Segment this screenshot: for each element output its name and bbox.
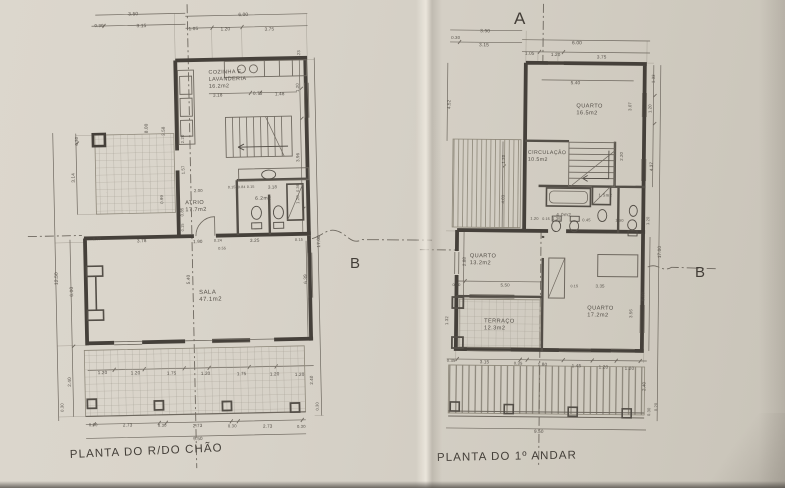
dimension-label: 1.45 xyxy=(572,363,582,368)
dimension-label: 0.35 xyxy=(447,358,456,363)
dimension-label: 4.52 xyxy=(446,99,451,109)
dimension-label: 0.15 xyxy=(570,284,578,288)
dimension-label: 9.50 xyxy=(534,429,544,434)
dimension-label: 0.30 xyxy=(314,402,319,411)
room-label: 1.5m2 xyxy=(598,193,612,198)
dimension-label: 1.20 xyxy=(530,216,539,221)
dimension-label: 1.20 xyxy=(295,372,305,377)
dimension-label: 1.20 xyxy=(625,366,635,371)
dimension-label: 5.50 xyxy=(501,282,511,287)
dimension-label: 1.20 xyxy=(98,370,108,375)
dimension-label: 3.78 xyxy=(137,238,147,243)
dimension-label: 1.20 xyxy=(551,52,561,57)
dimension-label: 1.20 xyxy=(221,26,231,31)
dimension-label: 1.20 xyxy=(295,195,300,204)
sink xyxy=(629,205,637,216)
dimension-label: 1.05 xyxy=(525,51,535,56)
dimension-label: 1.20 xyxy=(501,154,506,163)
dimension-label: 3.75 xyxy=(265,26,275,31)
dimension-label: 1.20 xyxy=(647,104,652,113)
dimension-label: 1.32 xyxy=(444,316,449,325)
dimension-label: 0.30 xyxy=(451,35,461,40)
ground-floor-plan: 3.500.303.156.001.051.203.7512.506.002.4… xyxy=(23,0,437,472)
dimension-label: 1.20 xyxy=(599,365,609,370)
dimension-label: 2.40 xyxy=(309,375,314,385)
section-marker-a: A xyxy=(514,9,526,28)
room-label: QUARTO17.2m2 xyxy=(587,305,614,318)
dimension-label: 6.00 xyxy=(640,291,645,301)
sink xyxy=(262,170,276,179)
dimension-label: 0.30 xyxy=(74,136,79,145)
dimension-label: 0.99 xyxy=(159,194,164,203)
dimension-label: 1.75 xyxy=(167,371,177,376)
roof-hatch-lower xyxy=(448,365,644,415)
dimension-label: 1.80 xyxy=(538,362,548,367)
dimension-label: 1.20 xyxy=(645,216,650,225)
dimension-label: 1.23 xyxy=(296,50,301,59)
dimension-label: 1.20 xyxy=(201,371,211,376)
dimension-label: 0.20 xyxy=(653,402,658,411)
dimension-label: 2.20 xyxy=(180,134,185,143)
dimension-label: 0.30 xyxy=(89,422,98,427)
dimension-label: 1.48 xyxy=(275,91,285,96)
dimension-label: 3.50 xyxy=(480,28,490,34)
room-label: SALA47.1m2 xyxy=(199,290,222,303)
dimension-label: 0.30 xyxy=(93,237,101,241)
dimension-label: 4.03 xyxy=(500,194,505,203)
dimension-label: 1.57 xyxy=(180,165,185,174)
toilet xyxy=(251,206,261,219)
dimension-label: 0.30 xyxy=(59,403,64,412)
bathroom-fixtures xyxy=(546,186,638,236)
dimension-label: 3.58 xyxy=(161,126,166,136)
dimension-label: 5.40 xyxy=(571,80,581,85)
dimension-label: 2.73 xyxy=(123,422,133,427)
dimension-label: 3.25 xyxy=(250,238,260,243)
toilet xyxy=(552,221,561,232)
dimension-label: 0.35 xyxy=(514,361,523,366)
dimension-label: 0.30 xyxy=(453,283,461,287)
room-label: QUARTO13.2m2 xyxy=(470,253,497,266)
dimension-label: 1.90 xyxy=(193,239,203,244)
dimension-label: 3.96 xyxy=(295,152,300,162)
dimension-label: 0.30 xyxy=(94,23,104,28)
wardrobes xyxy=(548,254,637,299)
dimension-label: 3.35 xyxy=(595,283,605,288)
dimension-label: 0.15 xyxy=(228,185,236,189)
dimension-label: 0.30 xyxy=(646,407,651,416)
dimension-label: 3.56 xyxy=(628,309,633,318)
dimension-label: 0.85 xyxy=(179,207,184,216)
dimension-label: 3.18 xyxy=(268,184,278,189)
section-marker-b-ground: B xyxy=(350,255,360,272)
dimension-label: 0.15 xyxy=(181,223,185,231)
dimension-label: 1.20 xyxy=(295,83,300,92)
dimension-label: 0.75 xyxy=(253,91,263,96)
section-marker-b-first: B xyxy=(695,264,705,281)
dimension-label: 17.00 xyxy=(657,246,662,259)
room-label: 4.0m2 xyxy=(556,212,571,217)
staircase xyxy=(569,142,615,186)
kitchen-counter xyxy=(177,60,308,145)
dimension-label: 0.55 xyxy=(218,246,226,250)
dimension-label: 0.24 xyxy=(214,239,222,243)
room-label: ATRIO17.7m2 xyxy=(185,200,207,213)
terrace-tiled-floor xyxy=(84,346,305,417)
dimension-label: 0.36 xyxy=(296,184,300,192)
room-label: CIRCULAÇÃO10.5m2 xyxy=(528,149,567,163)
room-label: 6.2m2 xyxy=(255,195,271,201)
dimension-label: 2.88 xyxy=(462,257,467,267)
dimension-label: 4.37 xyxy=(649,161,654,171)
dimension-label: 1.20 xyxy=(270,371,280,376)
fireplace xyxy=(87,266,104,320)
dimension-label: 0.15 xyxy=(295,238,303,242)
dimension-label: 1.33 xyxy=(651,74,656,83)
dimension-label: 12.50 xyxy=(54,272,60,285)
dimension-label: 0.15 xyxy=(542,217,550,221)
dimension-label: 1.20 xyxy=(131,370,141,375)
dimension-label: 2.73 xyxy=(193,423,203,428)
dimension-label: 0.45 xyxy=(582,217,591,222)
first-floor-plan: 3.500.303.156.001.051.203.755.401.331.20… xyxy=(418,3,719,470)
dimension-label: 3.15 xyxy=(479,42,489,48)
dimension-label: 2.40 xyxy=(67,377,72,387)
ground-floor-title: PLANTA DO R/DO CHÃO xyxy=(70,441,223,461)
dimension-label: 2.20 xyxy=(619,151,624,160)
dimension-label: 3.15 xyxy=(480,359,490,364)
first-floor-title: PLANTA DO 1º ANDAR xyxy=(437,450,577,464)
dimension-label: 0.15 xyxy=(247,185,255,189)
dimension-label: 2.00 xyxy=(194,188,203,193)
room-label: COZINHA ELAVANDERIA16.2m2 xyxy=(208,69,246,90)
roof-hatch-upper xyxy=(452,139,521,228)
dimension-label: 1.50 xyxy=(615,218,624,223)
dimension-label: 6.00 xyxy=(572,40,582,46)
toilet xyxy=(273,206,283,219)
dimension-label: 2.73 xyxy=(263,424,273,429)
dimension-label: 3.14 xyxy=(71,173,76,183)
toilet xyxy=(628,220,637,230)
dimension-label: 5.40 xyxy=(186,274,191,284)
dimension-label: 1.05 xyxy=(189,26,199,31)
dimension-label: 9.50 xyxy=(193,436,203,441)
dimension-label: 6.00 xyxy=(238,12,248,18)
dimension-label: 0.84 xyxy=(238,185,246,189)
dimension-label: 6.39 xyxy=(303,274,308,284)
dimension-label: 2.40 xyxy=(641,381,646,391)
dimension-label: 1.75 xyxy=(237,371,247,376)
dimension-label: 6.00 xyxy=(69,287,75,297)
sink xyxy=(598,209,607,221)
room-label: QUARTO16.5m2 xyxy=(576,103,603,116)
dimension-label: 0.30 xyxy=(228,423,237,428)
dimension-label: 3.75 xyxy=(597,54,607,59)
dimension-label: 0.30 xyxy=(158,423,167,428)
dimension-label: 3.18 xyxy=(213,92,223,97)
staircase xyxy=(225,116,292,157)
dimension-label: 17.00 xyxy=(316,235,321,248)
dimension-label: 3.15 xyxy=(136,23,146,29)
floor-plan-drawing: 3.500.303.156.001.051.203.7512.506.002.4… xyxy=(0,0,785,488)
floor-plan-photo: 3.500.303.156.001.051.203.7512.506.002.4… xyxy=(0,0,785,488)
entrance-door xyxy=(196,217,215,236)
dimension-label: 8.00 xyxy=(144,123,149,133)
dimension-label: 0.30 xyxy=(297,424,306,429)
dimension-label: 3.07 xyxy=(627,102,632,111)
dimension-label: 3.50 xyxy=(128,11,138,17)
